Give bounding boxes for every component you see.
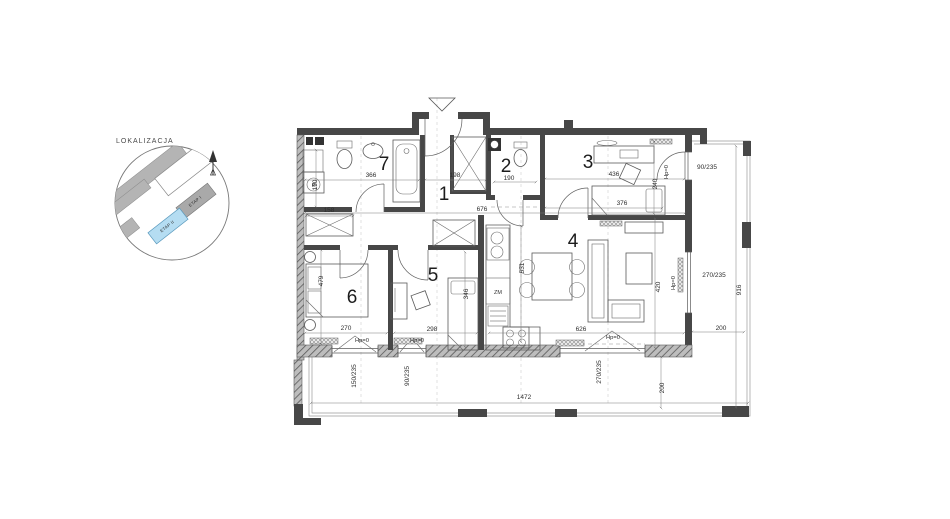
dimension-label: 198	[450, 172, 461, 179]
hall-wardrobe	[306, 214, 353, 236]
radiator	[556, 340, 584, 346]
desk-chair	[411, 291, 430, 310]
door-symbol	[585, 331, 640, 351]
dimension-label: 916	[736, 284, 743, 295]
bathtub	[393, 140, 420, 202]
walls	[297, 112, 707, 360]
dimension-label: 190	[504, 175, 515, 182]
room-number: 7	[379, 154, 390, 175]
furniture	[303, 137, 683, 350]
floor-level-label: Hp=0	[664, 165, 670, 179]
opening-size-label: 270/235	[596, 360, 603, 384]
room-number: 6	[347, 287, 358, 308]
sink-bowl	[491, 246, 503, 258]
meter-box	[315, 137, 324, 145]
opening-size-label: 90/235	[697, 164, 717, 171]
minimap-title: LOKALIZACJA	[116, 138, 174, 145]
coffee-table	[626, 253, 652, 284]
room-number: 5	[428, 265, 439, 286]
sofa-horizontal	[608, 300, 644, 322]
appliance-label: ZM	[494, 290, 502, 296]
bed-fold	[306, 300, 323, 317]
monitor	[620, 150, 638, 158]
room-number: 3	[583, 152, 594, 173]
desk	[594, 146, 654, 163]
terrace-corner	[294, 418, 321, 425]
nightstand	[305, 252, 316, 263]
desk-chair	[619, 163, 640, 184]
dimension-label: 200	[716, 325, 727, 332]
radiator	[678, 258, 683, 292]
dimension-label: 436	[609, 171, 620, 178]
dimension-label: 200	[659, 382, 666, 393]
balcony-post	[722, 406, 749, 417]
room-number: 4	[568, 231, 579, 252]
radiator	[310, 338, 338, 344]
location-minimap: LOKALIZACJA ETAP I ETAP II	[83, 137, 229, 260]
floor-level-label: Hp=0	[355, 338, 369, 344]
sofa-cushion	[592, 244, 604, 318]
dimension-label: 366	[366, 172, 377, 179]
bathtub-inner	[396, 144, 417, 194]
meter-box	[306, 137, 313, 145]
room-number: 2	[501, 156, 512, 177]
dimension-label: 298	[427, 326, 438, 333]
dimension-label: 240	[652, 178, 659, 189]
corner-sink-bowl	[491, 141, 499, 149]
burner	[519, 330, 526, 337]
floor-level-label: Hp=0	[606, 335, 620, 341]
desk-lamp	[597, 141, 617, 146]
burner	[507, 330, 514, 337]
dimension-label: 420	[655, 281, 662, 292]
terrace-side-wall	[294, 360, 302, 406]
floor-plan-page: LOKALIZACJA ETAP I ETAP II	[0, 0, 950, 519]
dimension-label: 531	[519, 262, 526, 273]
faucet	[372, 143, 375, 146]
opening-size-label: 90/235	[404, 366, 411, 386]
floor-level-label: Hp=0	[671, 276, 677, 290]
ventilation-shaft	[452, 137, 486, 191]
dimension-label: 346	[463, 288, 470, 299]
entrance-arrow	[429, 98, 455, 111]
dimension-label: 1472	[517, 394, 532, 401]
nightstand	[305, 320, 316, 331]
bathtub-drain	[404, 149, 409, 154]
radiator	[650, 139, 672, 144]
balcony-post	[458, 409, 487, 417]
radiator	[600, 221, 622, 226]
desk	[391, 283, 407, 319]
floor-plan-drawing: LOKALIZACJA ETAP I ETAP II	[0, 0, 950, 519]
toilet-tank	[337, 141, 352, 148]
balcony-post	[742, 222, 751, 248]
sofa-cushion	[612, 304, 640, 318]
bed-fold	[592, 198, 607, 215]
room-number: 1	[439, 184, 450, 205]
bathroom-cabinet	[303, 150, 323, 172]
opening-size-label: 270/235	[702, 272, 726, 279]
balcony-post	[743, 141, 751, 156]
dimension-label: 270	[341, 325, 352, 332]
sideboard	[625, 222, 663, 233]
sink-bowl	[491, 232, 503, 244]
toilet-tank	[514, 142, 527, 148]
dimension-label: 376	[617, 200, 628, 207]
dimension-label: 158	[324, 207, 335, 214]
balcony-post	[555, 409, 577, 417]
dimension-label: 479	[318, 275, 325, 286]
pillow	[308, 291, 321, 313]
dining-table	[532, 253, 572, 300]
dimension-label: 626	[576, 326, 587, 333]
toilet	[337, 150, 352, 169]
appliance-label: P	[312, 183, 316, 189]
sofa-vertical	[588, 240, 608, 322]
corridor-wardrobe	[433, 220, 475, 246]
floor-level-label: Hp=0	[410, 338, 424, 344]
toilet	[514, 150, 527, 167]
dimension-label: 676	[477, 206, 488, 213]
opening-size-label: 150/235	[351, 364, 358, 388]
